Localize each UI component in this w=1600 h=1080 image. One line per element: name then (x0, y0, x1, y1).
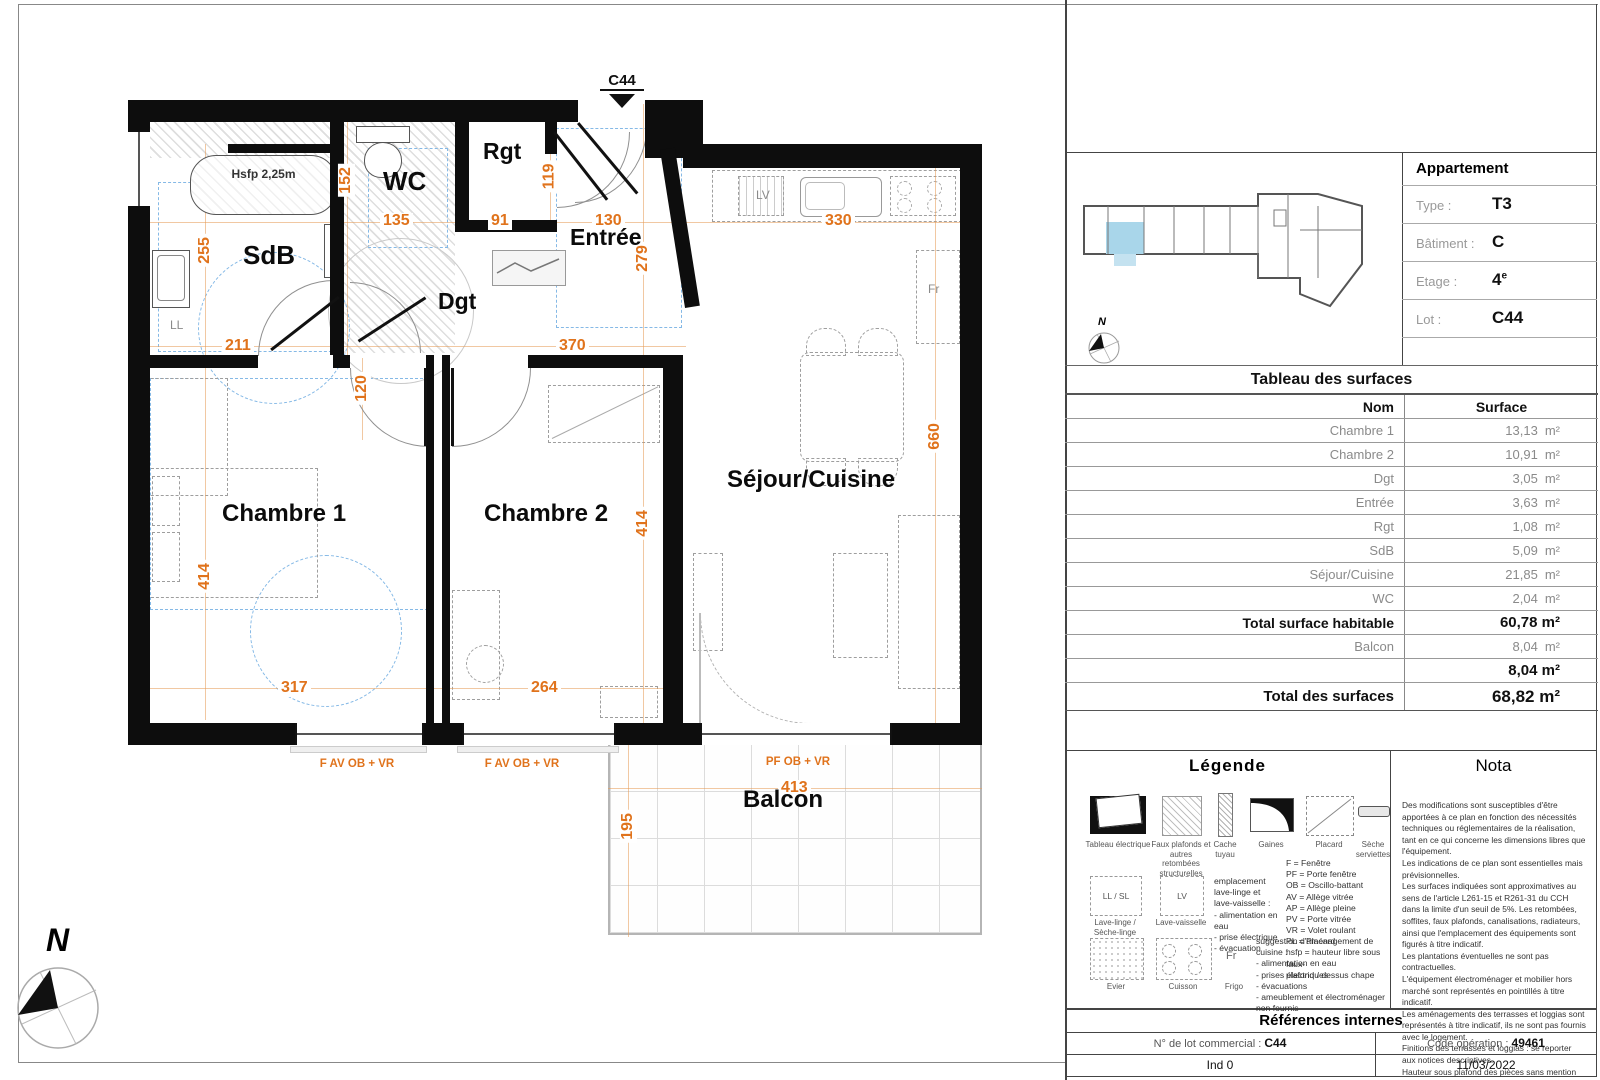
apartment-batiment-label: Bâtiment : (1416, 236, 1475, 251)
toilet-tank (356, 126, 410, 143)
wall-left-main (128, 206, 150, 745)
placard-icon (1306, 796, 1354, 836)
desk-chair (466, 645, 504, 683)
dim-317: 317 (278, 680, 311, 697)
sheet-frame-left (18, 4, 19, 1063)
sheet-frame-top (18, 4, 1598, 5)
window-label-chambre2: F AV OB + VR (462, 758, 582, 770)
sheet-frame-bottom-left (18, 1062, 1065, 1063)
window-label-chambre1: F AV OB + VR (297, 758, 417, 770)
legend-item-label: Sèche serviettes (1352, 840, 1394, 859)
dim-195: 195 (620, 810, 637, 843)
fridge (916, 250, 960, 344)
lave-linge-box: LL / SL (1090, 876, 1142, 916)
cache-tuyau-icon (1218, 793, 1233, 837)
room-label-rgt: Rgt (483, 138, 521, 165)
legend-item-label: Tableau électrique (1084, 840, 1152, 850)
room-label-sejour: Séjour/Cuisine (727, 466, 895, 494)
wall-rgt-entree-stub (545, 122, 557, 154)
legend-item-label: Gaines (1250, 840, 1292, 850)
lave-vaisselle-label: Lave-vaisselle (1154, 918, 1208, 928)
panel-compass-icon (1086, 330, 1122, 366)
wall-bath-niche (228, 144, 340, 153)
frigo-label: Frigo (1216, 982, 1252, 992)
dim-152: 152 (338, 164, 355, 197)
dim-255: 255 (197, 234, 214, 267)
washer-ll-label: LL (170, 318, 183, 332)
balcony (608, 745, 982, 935)
surface-row: Rgt1,08m² (1065, 515, 1598, 539)
apartment-etage-value: 4e (1492, 270, 1507, 290)
lot-marker: C44 (600, 72, 644, 91)
tableau-electrique-icon (1090, 796, 1146, 834)
dining-table (800, 352, 904, 462)
desk-chambre2 (452, 590, 500, 700)
faux-plafonds-icon (1162, 796, 1202, 836)
dim-211: 211 (222, 338, 254, 355)
lave-linge-label: Lave-linge / Sèche-linge (1084, 918, 1146, 937)
wall-divider-chambres-b (442, 355, 450, 723)
wall-wc-right (455, 122, 469, 232)
references-ind: Ind 0 (1065, 1058, 1375, 1072)
window-sdb-left (128, 130, 150, 210)
dim-119: 119 (542, 160, 559, 192)
references-lot: N° de lot commercial : C44 (1065, 1036, 1375, 1050)
door-leaf-balcony (699, 613, 701, 723)
compass-icon (12, 962, 104, 1054)
cuisson-label: Cuisson (1156, 982, 1210, 992)
lave-vaisselle-box: LV (1160, 876, 1204, 916)
apartment-row-line (1402, 337, 1597, 338)
dim-414-chambre1: 414 (197, 560, 214, 593)
panel-line-logo (1065, 152, 1597, 153)
dim-264: 264 (528, 680, 561, 697)
nota-title: Nota (1390, 756, 1597, 776)
coffee-table (833, 553, 888, 658)
surface-row: Dgt3,05m² (1065, 467, 1598, 491)
apartment-lot-value: C44 (1492, 308, 1523, 328)
bathtub (190, 155, 337, 215)
references-code: Code opération : 49461 (1375, 1036, 1597, 1050)
apartment-row-line (1402, 185, 1597, 186)
surface-row: WC2,04m² (1065, 587, 1598, 611)
wall-wc-left (330, 122, 344, 355)
surface-row: Chambre 113,13m² (1065, 419, 1598, 443)
panel-north-label: N (1098, 316, 1106, 328)
surface-row: Entrée3,63m² (1065, 491, 1598, 515)
gaines-icon (1250, 798, 1294, 832)
kitchen-sink (800, 177, 882, 217)
dim-91: 91 (488, 213, 512, 230)
door-arc-balcony (700, 613, 811, 724)
dim-120: 120 (354, 372, 371, 405)
window-sill (457, 746, 619, 753)
apartment-row-line (1402, 223, 1597, 224)
evier-label: Evier (1090, 982, 1142, 992)
dim-370: 370 (556, 338, 589, 355)
surfaces-grand-total-row: Total des surfaces 68,82 m² (1065, 683, 1598, 711)
seche-serviettes-icon (1358, 806, 1390, 817)
legend-item-label: Placard (1306, 840, 1352, 850)
legend-item-label: Cache tuyau (1206, 840, 1244, 859)
dim-line (205, 144, 206, 720)
frigo-box: Fr (1226, 950, 1236, 962)
floorplan-sheet: Hsfp 2,25m LL LV Fr (0, 0, 1600, 1080)
chair (858, 328, 898, 356)
surfaces-total-habitable-row: Total surface habitable 60,78 m² (1065, 611, 1598, 635)
surface-row: Séjour/Cuisine21,85m² (1065, 563, 1598, 587)
surfaces-title-row: Tableau des surfaces (1065, 366, 1598, 395)
apartment-divider (1402, 152, 1403, 365)
window-balcony-door (700, 723, 892, 745)
room-label-sdb: SdB (243, 240, 295, 271)
wall-kitchen-top (700, 144, 982, 168)
chair (806, 328, 846, 356)
wall-mid-right (528, 355, 663, 368)
dim-line (347, 104, 348, 355)
apartment-row-line (1402, 299, 1597, 300)
cuisson-icon (1156, 938, 1212, 980)
door-leaf-chambre2 (451, 368, 454, 446)
bathtub-hsfp-label: Hsfp 2,25m (196, 167, 331, 181)
lot-marker-arrow-icon (609, 94, 635, 108)
kitchen-note: suggestion d'aménagement de cuisine : - … (1256, 936, 1388, 1014)
references-date: 11/03/2022 (1375, 1058, 1597, 1072)
wall-chambre2-sejour (663, 355, 683, 723)
sdb-sink (152, 250, 190, 308)
room-label-balcon: Balcon (743, 786, 823, 814)
references-title: Références internes (1065, 1012, 1597, 1029)
shelf-zigzag (493, 251, 565, 285)
door-leaf-chambre1 (424, 368, 427, 446)
surfaces-balcon-total-row: 8,04 m² (1065, 659, 1598, 683)
legend-title: Légende (1065, 756, 1390, 776)
wall-right (960, 144, 982, 745)
pillow (152, 476, 180, 526)
surfaces-col-name: Nom (1065, 395, 1405, 418)
apartment-row-line (1402, 261, 1597, 262)
window-sill (290, 746, 427, 753)
apartment-title: Appartement (1416, 160, 1509, 177)
wall-mid-stub (333, 355, 350, 368)
apartment-type-value: T3 (1492, 194, 1512, 214)
door-arc-chambre2 (452, 368, 531, 447)
surfaces-balcon-row: Balcon 8,04m² (1065, 635, 1598, 659)
room-label-entree: Entrée (570, 224, 642, 251)
dim-135: 135 (380, 213, 413, 230)
fridge-fr-label: Fr (928, 282, 939, 296)
sofa (898, 515, 960, 689)
surfaces-table: Tableau des surfaces Nom Surface Chambre… (1065, 365, 1598, 711)
window-chambre2 (462, 723, 616, 745)
dishwasher-lv-label: LV (756, 188, 770, 202)
room-label-wc: WC (383, 166, 426, 197)
wall-top (128, 100, 578, 122)
dim-660: 660 (927, 420, 944, 453)
entree-shelf (492, 250, 566, 286)
surface-row: Chambre 210,91m² (1065, 443, 1598, 467)
dim-line (643, 104, 644, 745)
surfaces-title: Tableau des surfaces (1065, 371, 1598, 389)
pillow (152, 532, 180, 582)
surface-row: SdB5,09m² (1065, 539, 1598, 563)
legend-item-label: Faux plafonds et autres retombées struct… (1150, 840, 1212, 878)
evier-icon (1090, 938, 1144, 980)
bench-chambre2 (600, 686, 658, 718)
surfaces-col-surface: Surface (1405, 399, 1598, 415)
window-label-balcony: PF OB + VR (738, 756, 858, 768)
dim-414-chambre2: 414 (635, 507, 652, 540)
room-label-chambre2: Chambre 2 (484, 500, 608, 528)
wall-mid-left (128, 355, 258, 368)
room-label-chambre1: Chambre 1 (222, 500, 346, 528)
dim-330: 330 (822, 213, 855, 230)
legend-top-line (1065, 750, 1597, 751)
wall-divider-chambres-a (426, 355, 434, 723)
surfaces-header-row: Nom Surface (1065, 395, 1598, 419)
room-label-dgt: Dgt (438, 288, 476, 315)
apartment-type-label: Type : (1416, 198, 1451, 213)
dim-line (140, 688, 663, 689)
apartment-lot-label: Lot : (1416, 312, 1441, 327)
hob (890, 176, 956, 216)
apartment-etage-label: Etage : (1416, 274, 1457, 289)
apartment-batiment-value: C (1492, 232, 1504, 252)
window-chambre1 (295, 723, 424, 745)
north-label: N (46, 922, 69, 959)
building-key-plan (1078, 166, 1378, 341)
